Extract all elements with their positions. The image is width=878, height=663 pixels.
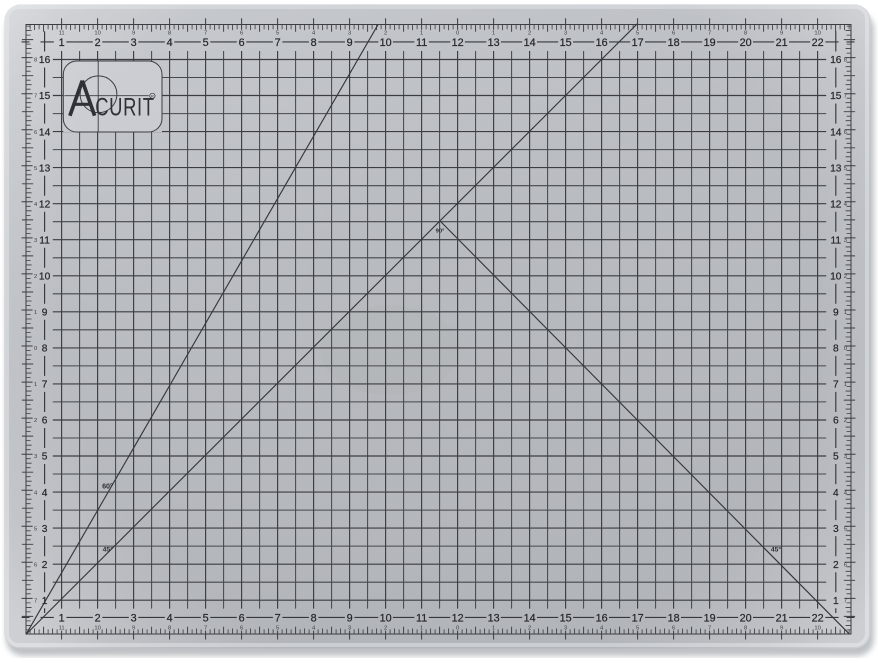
svg-text:6: 6 [42, 416, 48, 427]
svg-text:5: 5 [844, 526, 847, 532]
svg-text:9: 9 [347, 37, 353, 49]
svg-text:12: 12 [452, 37, 464, 49]
svg-text:7: 7 [42, 380, 48, 391]
svg-text:22: 22 [812, 612, 824, 624]
svg-text:11: 11 [416, 37, 427, 49]
svg-text:8: 8 [744, 31, 747, 37]
svg-text:2: 2 [34, 418, 37, 424]
svg-text:19: 19 [704, 37, 716, 49]
svg-text:8: 8 [34, 58, 37, 64]
svg-text:7: 7 [34, 94, 37, 100]
svg-text:4: 4 [42, 488, 48, 499]
svg-text:9: 9 [347, 612, 353, 624]
svg-text:45°: 45° [103, 545, 114, 553]
svg-text:16: 16 [830, 55, 842, 66]
svg-text:9: 9 [833, 308, 839, 319]
svg-text:9: 9 [42, 308, 48, 319]
svg-text:2: 2 [384, 626, 387, 632]
svg-text:8: 8 [844, 58, 847, 64]
svg-text:2: 2 [42, 560, 48, 571]
svg-text:6: 6 [240, 626, 243, 632]
svg-text:45°: 45° [771, 545, 782, 553]
svg-text:15: 15 [560, 37, 572, 49]
svg-text:6: 6 [240, 31, 243, 37]
svg-text:3: 3 [42, 524, 48, 535]
svg-text:1: 1 [42, 596, 48, 607]
svg-text:10: 10 [814, 31, 820, 37]
svg-text:9: 9 [132, 626, 135, 632]
svg-text:7: 7 [275, 37, 281, 49]
svg-text:4: 4 [167, 37, 173, 49]
svg-text:13: 13 [39, 163, 51, 174]
svg-text:1: 1 [59, 37, 65, 49]
svg-text:9: 9 [132, 31, 135, 37]
svg-text:2: 2 [34, 274, 37, 280]
svg-text:1: 1 [34, 382, 37, 388]
svg-text:5: 5 [42, 452, 48, 463]
svg-text:14: 14 [830, 127, 842, 138]
svg-text:3: 3 [833, 524, 839, 535]
svg-text:2: 2 [844, 418, 847, 424]
svg-text:1: 1 [844, 382, 847, 388]
svg-text:5: 5 [203, 37, 209, 49]
svg-text:2: 2 [384, 31, 387, 37]
svg-text:3: 3 [348, 626, 351, 632]
svg-text:6: 6 [672, 626, 675, 632]
svg-text:60°: 60° [102, 482, 113, 491]
svg-text:6: 6 [833, 416, 839, 427]
svg-text:10: 10 [94, 31, 100, 37]
svg-text:13: 13 [488, 37, 500, 49]
svg-text:7: 7 [34, 598, 37, 604]
svg-text:1: 1 [59, 612, 65, 624]
svg-text:5: 5 [636, 31, 639, 37]
svg-text:13: 13 [830, 163, 842, 174]
svg-text:0: 0 [34, 346, 37, 352]
svg-text:3: 3 [564, 31, 567, 37]
svg-text:14: 14 [39, 127, 51, 138]
svg-text:21: 21 [776, 612, 788, 624]
svg-text:11: 11 [39, 235, 50, 246]
svg-text:2: 2 [528, 31, 531, 37]
svg-text:13: 13 [488, 612, 500, 624]
svg-text:3: 3 [34, 454, 37, 460]
svg-text:7: 7 [833, 380, 839, 391]
svg-text:10: 10 [39, 272, 51, 283]
svg-text:5: 5 [844, 166, 847, 172]
svg-text:16: 16 [596, 612, 608, 624]
svg-text:2: 2 [833, 560, 839, 571]
svg-text:21: 21 [776, 37, 788, 49]
svg-text:6: 6 [844, 562, 847, 568]
svg-text:5: 5 [34, 166, 37, 172]
svg-text:11: 11 [59, 626, 65, 632]
svg-text:1: 1 [492, 31, 495, 37]
svg-text:1: 1 [34, 310, 37, 316]
svg-text:1: 1 [844, 310, 847, 316]
svg-text:8: 8 [311, 37, 317, 49]
svg-text:22: 22 [812, 37, 824, 49]
svg-text:1: 1 [420, 31, 423, 37]
svg-text:17: 17 [632, 37, 644, 49]
svg-text:90°: 90° [436, 229, 445, 235]
svg-text:3: 3 [844, 238, 847, 244]
svg-text:10: 10 [830, 272, 842, 283]
svg-text:10: 10 [814, 626, 820, 632]
svg-text:19: 19 [704, 612, 716, 624]
svg-text:7: 7 [708, 31, 711, 37]
svg-text:11: 11 [59, 31, 65, 37]
svg-text:2: 2 [844, 274, 847, 280]
svg-text:1: 1 [833, 596, 839, 607]
svg-text:6: 6 [239, 37, 245, 49]
svg-text:CURIT: CURIT [95, 93, 154, 122]
svg-text:15: 15 [39, 91, 51, 102]
svg-text:8: 8 [744, 626, 747, 632]
svg-text:14: 14 [524, 37, 536, 49]
svg-text:5: 5 [203, 612, 209, 624]
svg-text:7: 7 [204, 626, 207, 632]
svg-text:7: 7 [844, 598, 847, 604]
svg-text:3: 3 [348, 31, 351, 37]
svg-text:7: 7 [708, 626, 711, 632]
svg-text:11: 11 [831, 235, 842, 246]
svg-text:2: 2 [95, 612, 101, 624]
svg-text:9: 9 [780, 31, 783, 37]
svg-text:6: 6 [844, 130, 847, 136]
svg-text:10: 10 [380, 37, 392, 49]
svg-text:5: 5 [276, 626, 279, 632]
svg-text:18: 18 [668, 612, 680, 624]
svg-text:4: 4 [167, 612, 173, 624]
svg-text:0: 0 [456, 31, 459, 37]
svg-text:5: 5 [636, 626, 639, 632]
svg-text:11: 11 [416, 612, 427, 624]
svg-text:10: 10 [94, 626, 100, 632]
svg-text:4: 4 [833, 488, 839, 499]
svg-text:3: 3 [34, 238, 37, 244]
svg-text:8: 8 [168, 31, 171, 37]
svg-text:14: 14 [524, 612, 536, 624]
svg-text:6: 6 [34, 130, 37, 136]
svg-text:7: 7 [275, 612, 281, 624]
svg-text:17: 17 [632, 612, 644, 624]
svg-text:9: 9 [780, 626, 783, 632]
svg-text:0: 0 [844, 346, 847, 352]
svg-text:1: 1 [420, 626, 423, 632]
svg-text:6: 6 [239, 612, 245, 624]
svg-text:3: 3 [131, 37, 137, 49]
svg-text:12: 12 [39, 199, 51, 210]
svg-text:8: 8 [168, 626, 171, 632]
svg-text:8: 8 [42, 344, 48, 355]
svg-text:15: 15 [560, 612, 572, 624]
svg-text:10: 10 [380, 612, 392, 624]
svg-text:2: 2 [95, 37, 101, 49]
svg-text:3: 3 [131, 612, 137, 624]
svg-text:18: 18 [668, 37, 680, 49]
svg-text:7: 7 [204, 31, 207, 37]
svg-text:12: 12 [452, 612, 464, 624]
svg-text:16: 16 [596, 37, 608, 49]
svg-text:R: R [151, 93, 154, 98]
svg-text:12: 12 [830, 199, 842, 210]
svg-text:1: 1 [492, 626, 495, 632]
svg-text:5: 5 [34, 526, 37, 532]
svg-text:20: 20 [740, 37, 752, 49]
svg-text:8: 8 [311, 612, 317, 624]
svg-text:15: 15 [830, 91, 842, 102]
svg-text:3: 3 [564, 626, 567, 632]
svg-text:0: 0 [456, 626, 459, 632]
svg-text:3: 3 [844, 454, 847, 460]
svg-text:20: 20 [740, 612, 752, 624]
svg-text:8: 8 [833, 344, 839, 355]
svg-text:16: 16 [39, 55, 51, 66]
svg-text:5: 5 [833, 452, 839, 463]
svg-text:6: 6 [672, 31, 675, 37]
svg-text:2: 2 [528, 626, 531, 632]
svg-text:6: 6 [34, 562, 37, 568]
svg-text:7: 7 [844, 94, 847, 100]
svg-text:5: 5 [276, 31, 279, 37]
